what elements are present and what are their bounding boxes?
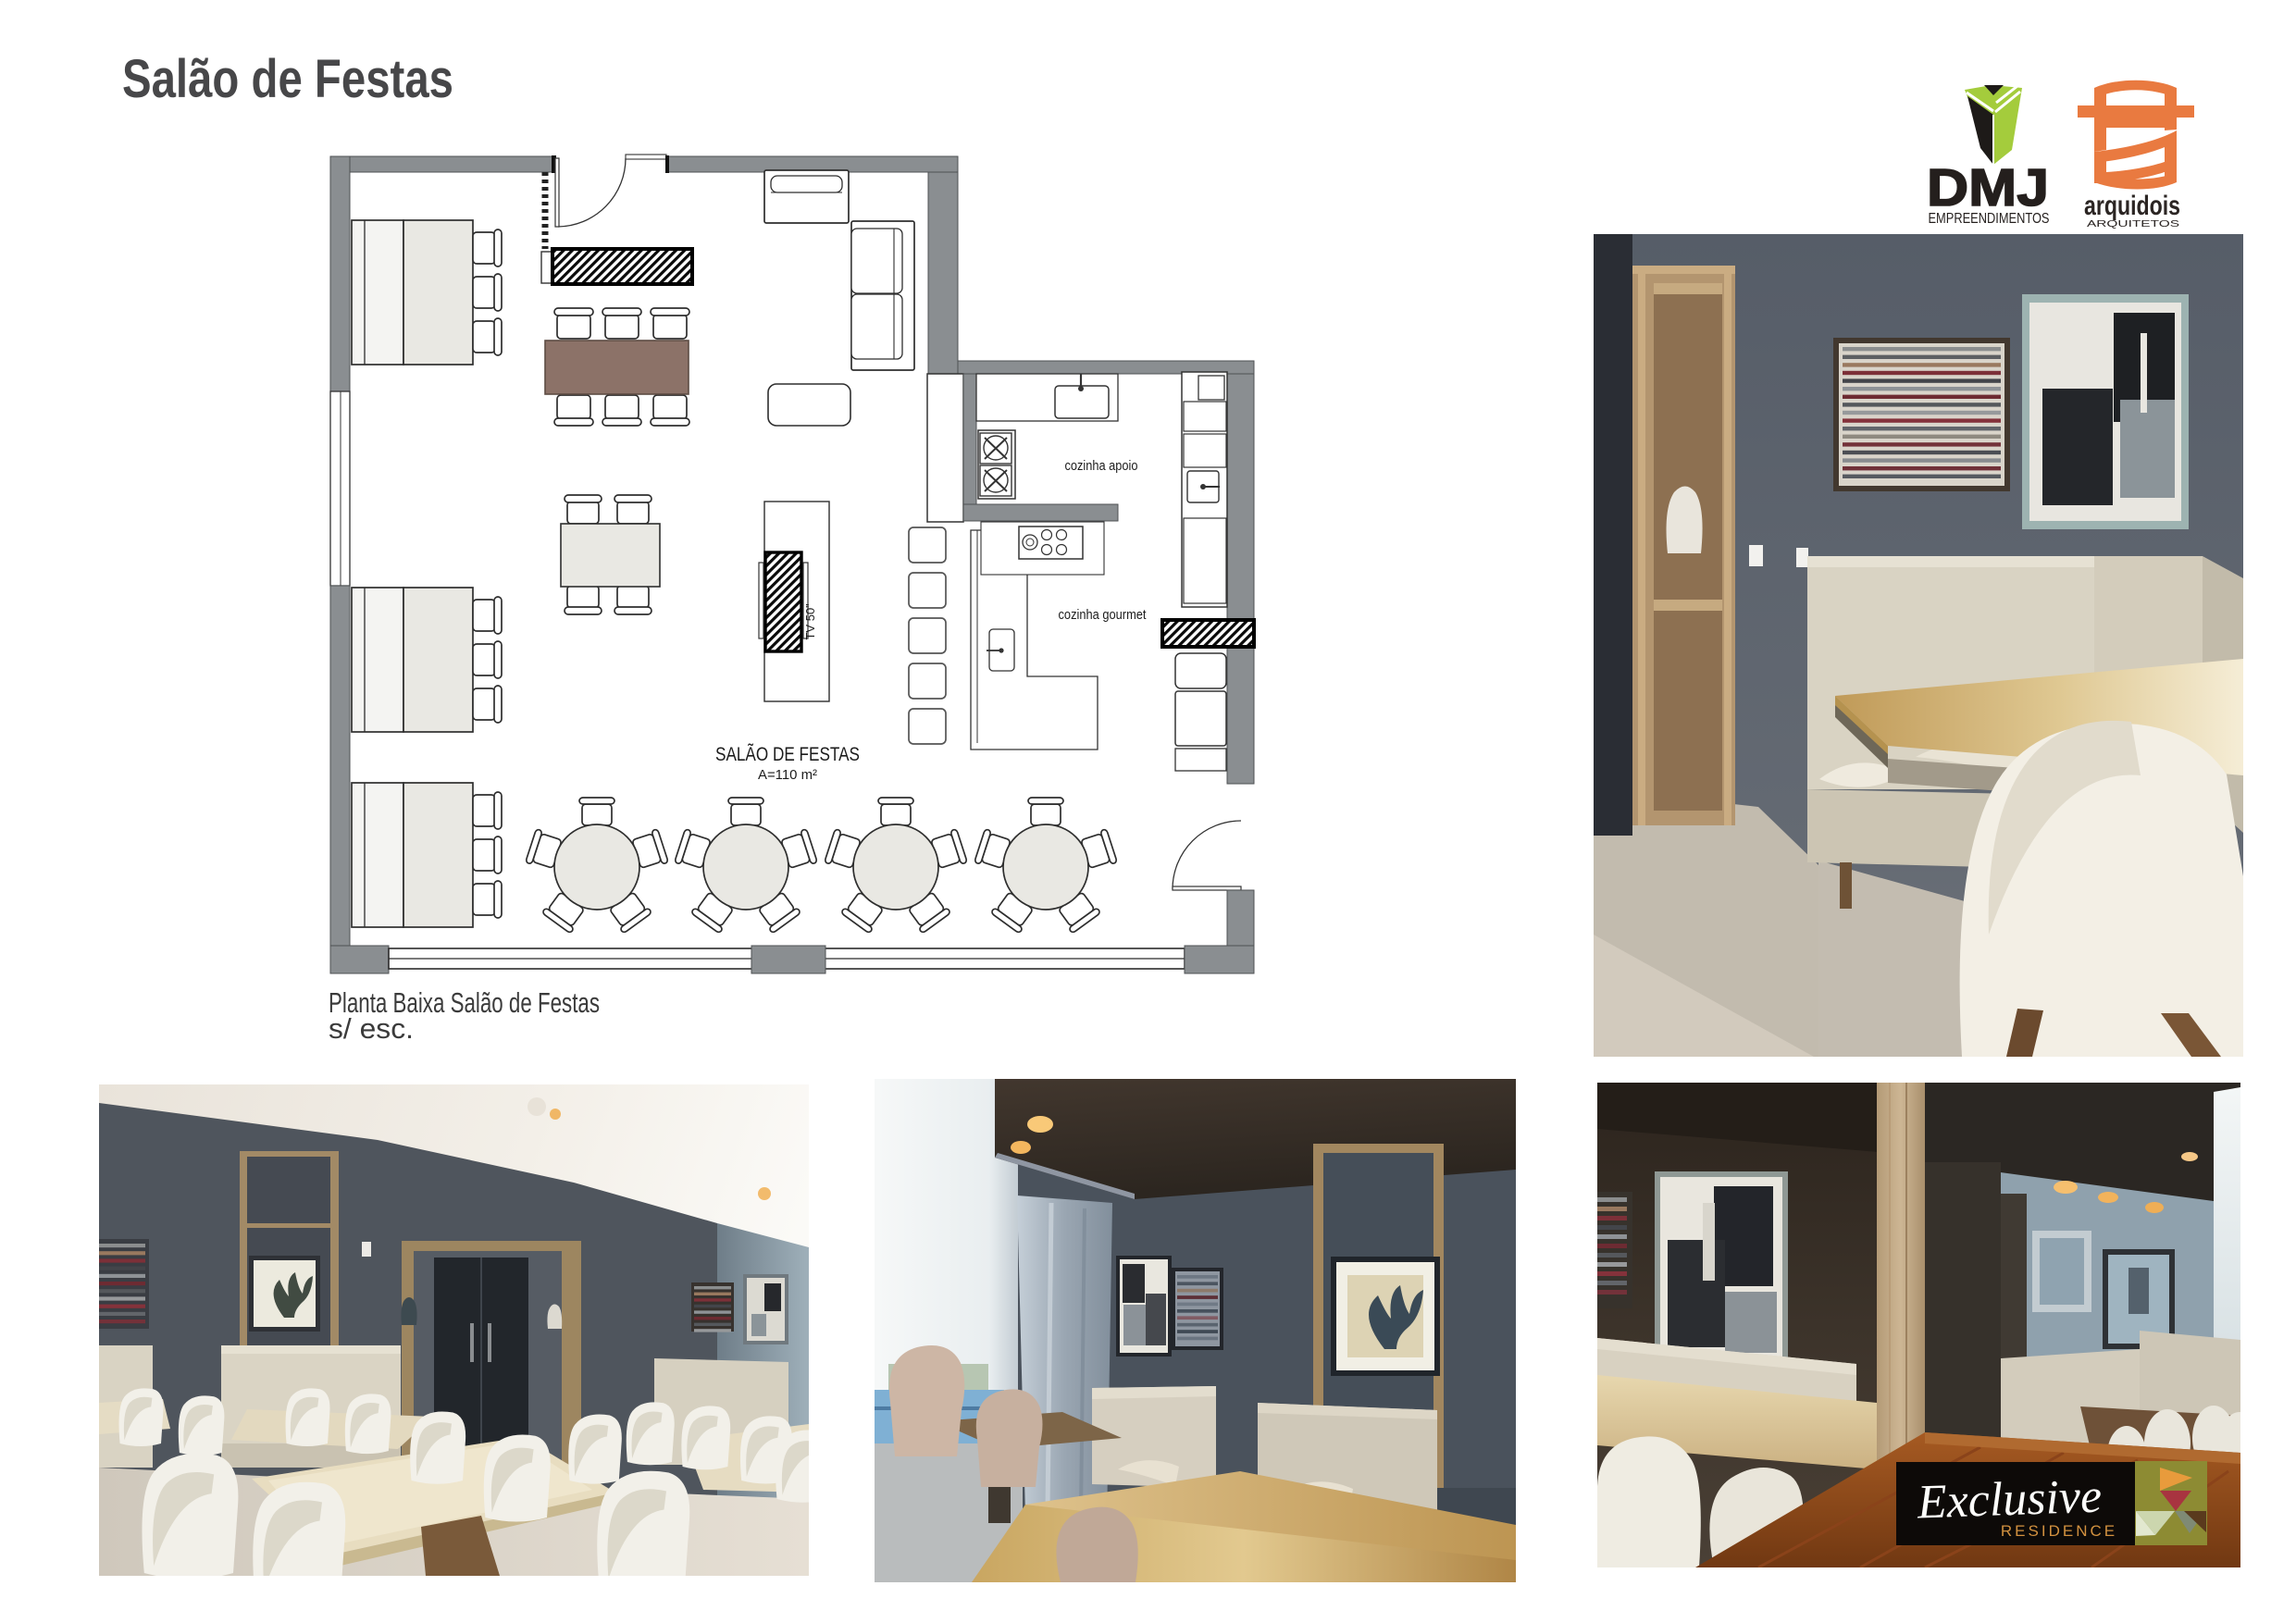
- svg-text:EMPREENDIMENTOS: EMPREENDIMENTOS: [1929, 211, 2050, 227]
- svg-text:arquidois: arquidois: [2084, 191, 2180, 221]
- svg-text:DMJ: DMJ: [1927, 158, 2049, 217]
- svg-text:RESIDENCE: RESIDENCE: [2001, 1522, 2117, 1540]
- svg-text:cozinha apoio: cozinha apoio: [1065, 458, 1138, 474]
- svg-text:TV 50”: TV 50”: [803, 603, 817, 639]
- svg-text:ARQUITETOS: ARQUITETOS: [2087, 219, 2180, 229]
- svg-text:cozinha gourmet: cozinha gourmet: [1059, 607, 1148, 623]
- svg-text:Exclusive: Exclusive: [1916, 1470, 2103, 1530]
- svg-text:A=110 m²: A=110 m²: [758, 767, 817, 783]
- svg-text:SALÃO DE FESTAS: SALÃO DE FESTAS: [715, 743, 860, 765]
- svg-text:Salão de Festas: Salão de Festas: [122, 49, 453, 109]
- svg-text:s/ esc.: s/ esc.: [329, 1012, 414, 1045]
